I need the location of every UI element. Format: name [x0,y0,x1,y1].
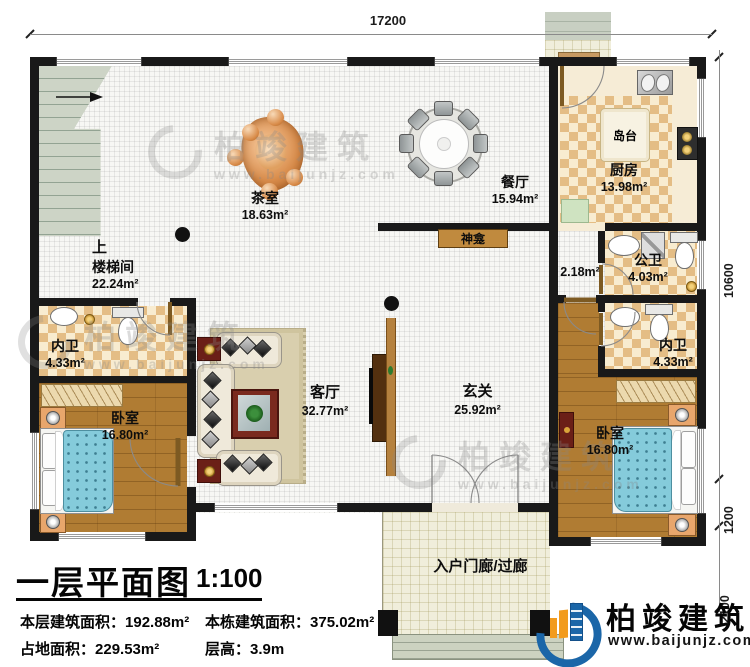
room-area: 32.77m² [280,403,370,419]
wall [558,295,566,303]
room-label-pantry: 2.18m² [540,264,620,280]
room-area: 15.94m² [465,191,565,207]
wall [605,223,706,231]
kitchen-sink [637,70,673,95]
tea-stool [242,124,259,141]
plant [246,405,263,422]
stat-total-area: 本栋建筑面积：375.02m² [205,611,374,632]
shrine-label: 神龛 [461,230,485,247]
room-area: 4.33m² [15,355,115,371]
stat-label: 占地面积： [20,641,95,658]
room-label-bedroom-left: 卧室 16.80m² [75,409,175,443]
brand-url: www.baijunjz.com [608,633,750,649]
stat-floor-area: 本层建筑面积：192.88m² [20,611,189,632]
window [214,503,338,512]
room-name: 厨房 [586,161,662,179]
window [30,432,39,510]
pillow [681,468,696,505]
room-name: 玄关 [430,382,525,402]
porch-pillar-left [378,610,398,636]
pillow [681,431,696,468]
room-area: 13.98m² [586,179,662,195]
room-label-ensuite-right: 内卫 4.33m² [623,336,723,370]
lamp-icon [204,344,215,355]
sink [610,307,640,327]
lamp-icon [675,408,689,422]
shrine: 神龛 [438,229,508,248]
room-label-tea: 茶室 18.63m² [215,189,315,223]
plan-scale: 1:100 [196,563,263,594]
chair [434,101,453,116]
room-area: 16.80m² [75,427,175,443]
wardrobe-right [616,380,696,403]
room-area: 18.63m² [215,207,315,223]
room-label-living: 客厅 32.77m² [280,383,370,419]
sink-bowl [654,73,671,94]
sink-bowl [639,73,656,94]
wall [187,298,196,436]
logo-building-icon [559,610,568,639]
column [384,296,399,311]
wall [170,298,187,306]
room-name: 客厅 [280,383,370,403]
stat-label: 层高： [205,641,250,658]
stat-land-area: 占地面积：229.53m² [20,638,159,659]
dimension-line-right [719,50,720,612]
nightstand [40,407,66,429]
side-table [197,337,221,361]
dimension-label-top: 17200 [338,13,438,28]
partition-plant [388,366,393,375]
kitchen-island: 岛台 [600,108,650,162]
nightstand [668,404,696,426]
room-label-porch: 入户门廊/过廊 [408,557,553,577]
chair [399,134,414,153]
room-area: 2.18m² [540,264,620,280]
window [697,240,706,290]
chair [434,171,453,186]
room-label-ensuite-left: 内卫 4.33m² [15,337,115,371]
room-name: 内卫 [623,336,723,354]
room-area: 22.24m² [92,276,182,292]
dining-table-center [437,137,451,151]
brand-name: 柏竣建筑 [606,594,750,638]
room-area: 4.33m² [623,354,723,370]
window [228,57,348,66]
wall [30,298,138,306]
side-table [197,459,221,483]
window [590,537,662,546]
room-label-bedroom-right: 卧室 16.80m² [560,424,660,458]
lamp-icon [204,466,215,477]
room-name: 餐厅 [465,173,565,191]
window [616,57,690,66]
room-area: 16.80m² [560,442,660,458]
room-name: 卧室 [75,409,175,427]
room-label-foyer: 玄关 25.92m² [430,382,525,418]
burner [682,132,692,142]
logo-building-icon [550,618,557,638]
stat-value: 375.02m² [310,614,374,631]
room-label-kitchen: 厨房 13.98m² [586,161,662,195]
floor-drain [84,314,95,325]
sink [50,307,78,326]
window [58,532,146,541]
stat-value: 192.88m² [125,614,189,631]
room-name: 入户门廊/过廊 [408,557,553,577]
lamp-icon [46,411,60,425]
wall [30,376,187,383]
partition-panel [386,318,396,476]
stat-label: 本层建筑面积： [20,614,125,631]
lamp-icon [46,515,60,529]
logo-building-icon [570,603,583,641]
stat-value: 229.53m² [95,641,159,658]
kitchen-mat [561,199,589,223]
tea-stool [286,169,303,186]
tea-table-top [252,131,290,174]
dimension-line-top [30,34,712,35]
stat-label: 本栋建筑面积： [205,614,310,631]
floor-plan-canvas: 岛台 [0,0,750,667]
toilet [118,317,138,345]
room-name: 卧室 [560,424,660,442]
room-name: 茶室 [215,189,315,207]
floor-hall-right [558,303,599,377]
window [56,57,142,66]
stairs-up-label: 上 [92,238,182,258]
wall [598,303,605,312]
room-label-dining: 餐厅 15.94m² [465,173,565,207]
coffee-table [231,389,279,439]
entrance-threshold [432,503,518,512]
nightstand [668,514,696,536]
room-name: 楼梯间 [92,258,182,276]
island-label: 岛台 [613,127,637,144]
dimension-label-right-upper: 10600 [722,228,736,298]
wardrobe-left [41,384,123,407]
window [697,78,706,138]
window [434,57,540,66]
page-title: 一层平面图 [16,556,191,604]
burner [682,145,692,155]
stat-floor-height: 层高：3.9m [205,638,284,659]
tea-stool [267,109,284,126]
room-name: 内卫 [15,337,115,355]
title-underline [16,598,262,601]
wall [187,487,196,541]
wall [518,503,558,512]
chair [473,134,488,153]
tea-stool [227,149,244,166]
room-label-stairwell: 上 楼梯间 22.24m² [92,238,182,292]
logo-swoosh-icon [523,589,615,667]
dimension-label-right-middle: 1200 [722,478,736,534]
rear-steps [545,12,611,40]
room-area: 25.92m² [430,402,525,418]
wall [596,295,605,303]
wall [605,295,706,303]
stove [677,127,698,160]
stat-value: 3.9m [250,641,284,658]
lamp-icon [675,518,689,532]
brand-logo-icon [534,594,602,658]
nightstand [40,511,66,533]
window [697,428,706,514]
